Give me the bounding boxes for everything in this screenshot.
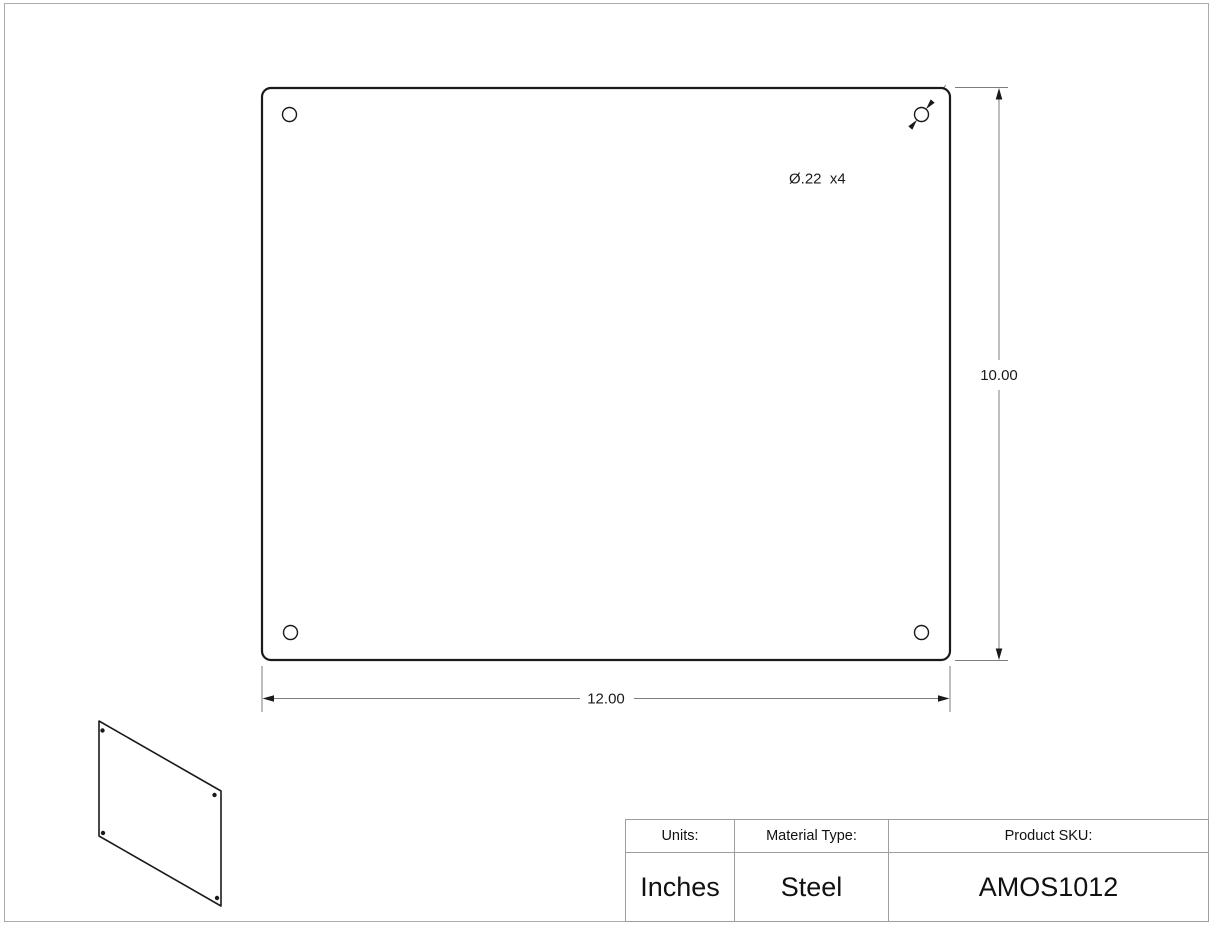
title-block: Units: Material Type: Product SKU: Inche… (625, 819, 1209, 922)
hole-bottom-right (915, 626, 929, 640)
hole-top-right (915, 108, 929, 122)
iso-hole-bottom-left (101, 831, 105, 835)
height-dimension: 10.00 (955, 88, 1018, 661)
hole-top-left (283, 108, 297, 122)
width-dimension-label: 12.00 (587, 691, 625, 708)
product-sku-value: AMOS1012 (888, 853, 1208, 921)
isometric-view (99, 721, 221, 906)
width-dimension: 12.00 (262, 666, 950, 712)
units-header: Units: (626, 820, 734, 853)
iso-hole-bottom-right (215, 896, 219, 900)
material-type-header: Material Type: (734, 820, 888, 853)
material-type-value: Steel (734, 853, 888, 921)
drawing-canvas: Ø.22 x4 10.00 12.00 (0, 0, 1214, 926)
drawing-sheet: Ø.22 x4 10.00 12.00 (0, 0, 1214, 926)
hole-bottom-left (284, 626, 298, 640)
height-dimension-label: 10.00 (980, 367, 1018, 384)
isometric-plate-outline (99, 721, 221, 906)
plate-outline (262, 88, 950, 660)
product-sku-header: Product SKU: (888, 820, 1208, 853)
iso-hole-top-right (212, 793, 216, 797)
units-value: Inches (626, 853, 734, 921)
hole-callout-label: Ø.22 x4 (789, 171, 846, 188)
iso-hole-top-left (100, 728, 104, 732)
